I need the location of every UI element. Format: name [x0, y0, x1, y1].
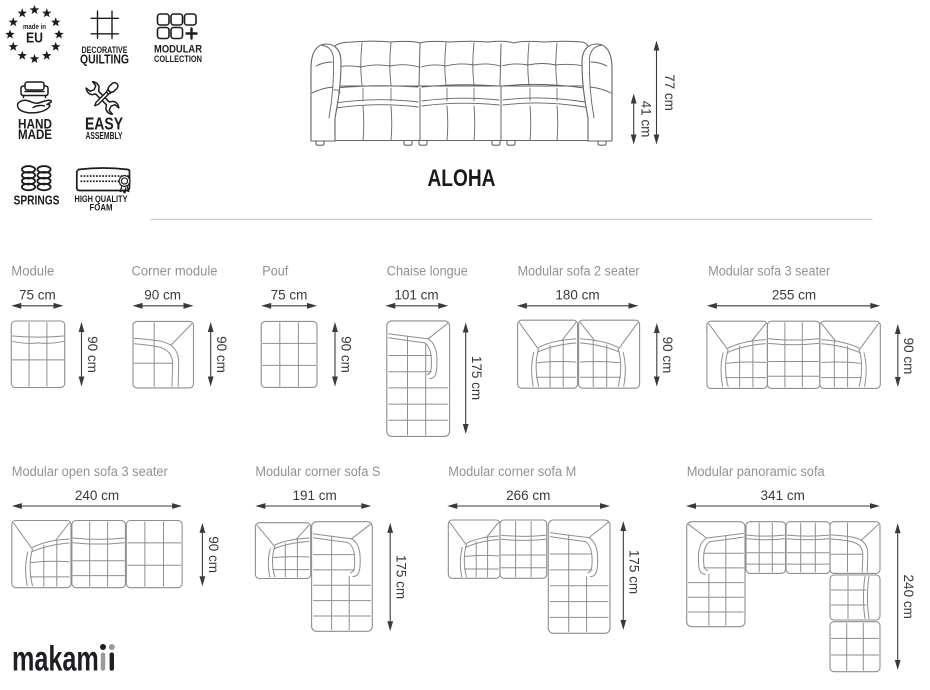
svg-text:101 cm: 101 cm [394, 288, 438, 303]
svg-text:Modular corner sofa M: Modular corner sofa M [448, 464, 576, 479]
svg-text:Modular corner sofa S: Modular corner sofa S [255, 464, 380, 479]
svg-text:77 cm: 77 cm [662, 74, 677, 111]
svg-text:175 cm: 175 cm [627, 550, 642, 594]
svg-text:191 cm: 191 cm [292, 488, 336, 503]
svg-text:ASSEMBLY: ASSEMBLY [86, 131, 123, 142]
svg-text:Modular panoramic sofa: Modular panoramic sofa [687, 464, 825, 479]
svg-text:COLLECTION: COLLECTION [154, 54, 202, 64]
svg-text:90 cm: 90 cm [85, 336, 100, 373]
svg-text:255 cm: 255 cm [772, 288, 816, 303]
svg-text:Chaise longue: Chaise longue [387, 264, 468, 279]
svg-text:Pouf: Pouf [262, 264, 288, 279]
svg-text:Modular open sofa 3 seater: Modular open sofa 3 seater [12, 464, 168, 479]
svg-text:75 cm: 75 cm [19, 288, 56, 303]
svg-text:90 cm: 90 cm [338, 336, 353, 373]
svg-text:75 cm: 75 cm [271, 288, 308, 303]
svg-text:90 cm: 90 cm [660, 337, 675, 374]
svg-text:180 cm: 180 cm [555, 288, 599, 303]
svg-text:240 cm: 240 cm [901, 575, 916, 619]
svg-text:90 cm: 90 cm [206, 536, 221, 573]
svg-text:Modular sofa 3 seater: Modular sofa 3 seater [708, 264, 830, 279]
svg-text:175 cm: 175 cm [469, 356, 484, 400]
svg-text:EU: EU [26, 30, 43, 46]
svg-text:makam: makam [12, 640, 99, 679]
svg-text:240 cm: 240 cm [75, 488, 119, 503]
svg-text:41 cm: 41 cm [639, 101, 654, 138]
svg-text:90 cm: 90 cm [214, 336, 229, 373]
svg-text:175 cm: 175 cm [394, 555, 409, 599]
svg-text:Modular sofa 2 seater: Modular sofa 2 seater [518, 264, 640, 279]
svg-text:266 cm: 266 cm [506, 488, 550, 503]
svg-text:ALOHA: ALOHA [428, 165, 496, 192]
svg-text:FOAM: FOAM [90, 203, 113, 213]
svg-text:90 cm: 90 cm [901, 338, 916, 375]
svg-text:90 cm: 90 cm [144, 288, 181, 303]
svg-text:SPRINGS: SPRINGS [14, 194, 60, 208]
svg-text:341 cm: 341 cm [761, 488, 805, 503]
svg-text:Module: Module [11, 264, 54, 279]
svg-text:Corner module: Corner module [132, 264, 218, 279]
svg-text:MADE: MADE [18, 126, 52, 142]
svg-text:QUILTING: QUILTING [80, 52, 129, 67]
